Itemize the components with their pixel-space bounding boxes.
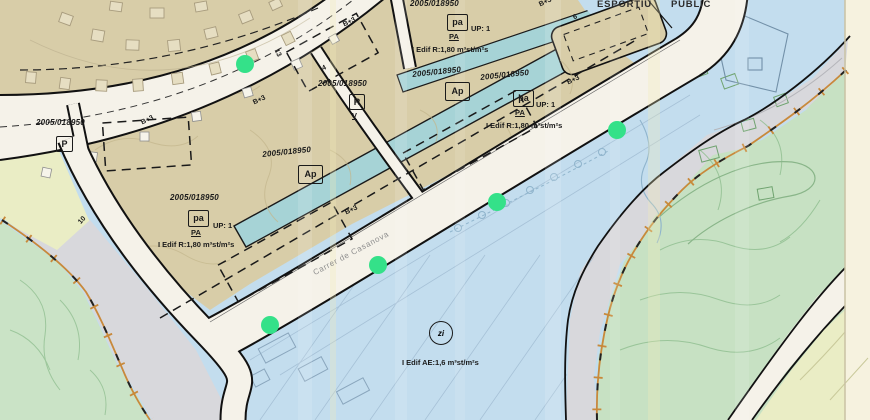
parcel-ref-label: 2005/018950 — [170, 194, 219, 202]
annotation-dot-2[interactable] — [608, 121, 626, 139]
edificability-r-label: I Edif R:1,80 m³st/m²s — [486, 122, 562, 130]
up-label: UP: 1 — [213, 222, 232, 230]
up-label: UP: 1 — [536, 101, 555, 109]
zone-pa-badge: pa — [513, 90, 534, 107]
zone-pa-badge: pa — [188, 210, 209, 227]
edificability-r-label: I Edif R:1,80 m³st/m²s — [158, 241, 234, 249]
zone-ap-badge: Ap — [445, 82, 470, 101]
annotation-dot-4[interactable] — [369, 256, 387, 274]
zone-pa-sub-label: PA — [515, 109, 525, 117]
parcel-ref-label: 2005/018950 — [410, 0, 459, 8]
edificability-ae-label: I Edif AE:1,6 m³st/m²s — [402, 359, 479, 367]
zone-ap-badge: Ap — [298, 165, 323, 184]
esportiu-area-label: ESPORTIU — [597, 0, 652, 10]
parcel-ref-label: 2005/018950 — [36, 119, 85, 127]
annotation-dot-5[interactable] — [261, 316, 279, 334]
zone-pa-sub-label: PA — [191, 229, 201, 237]
edificability-r-label: I Edif R:1,80 m³st/m²s — [412, 46, 488, 54]
parcel-ref-label: 2005/018950 — [318, 80, 367, 88]
zone-p-badge: P — [56, 136, 73, 152]
zone-pa-sub-label: PA — [449, 33, 459, 41]
public-area-label: PUBLIC — [671, 0, 711, 10]
annotation-dot-3[interactable] — [488, 193, 506, 211]
zone-pa-badge: pa — [447, 14, 468, 31]
up-label: UP: 1 — [471, 25, 490, 33]
planning-map-screenshot: 2005/018950 P B+3 B+3 B+3 B+3 B+3 B+3 20… — [0, 0, 870, 420]
zone-zi-badge: zi — [429, 321, 453, 345]
annotation-dot-1[interactable] — [236, 55, 254, 73]
zone-r-badge: R — [349, 94, 365, 110]
zone-v-label: V — [352, 112, 357, 120]
map-graphic — [0, 0, 870, 420]
